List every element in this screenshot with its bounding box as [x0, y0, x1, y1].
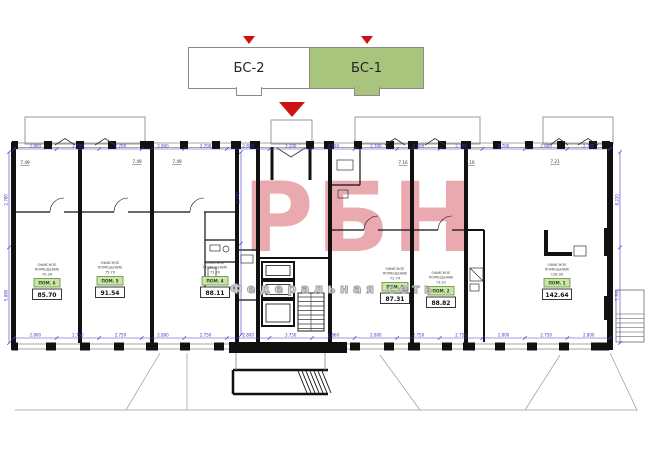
dim-label: 2.770	[236, 192, 241, 204]
balconies	[25, 117, 613, 144]
dim-label: 2.750	[115, 333, 127, 338]
room-type-label: ПОМЕЩЕНИЕ	[429, 276, 454, 280]
unit-badge-label: ПОМ. 5	[101, 279, 118, 284]
exterior-walls	[11, 142, 613, 353]
entrance-canopy	[271, 120, 312, 144]
room-label-group: ОФИСНОЕПОМЕЩЕНИЕ70.34ПОМ. 685.70	[33, 263, 62, 300]
total-area-value: 85.70	[38, 292, 57, 299]
room-type-label: ПОМЕЩЕНИЕ	[383, 272, 408, 276]
total-area-value: 91.54	[101, 290, 120, 297]
room-type-label: ОФИСНОЕ	[432, 271, 452, 275]
room-type-label: ПОМЕЩЕНИЕ	[545, 268, 570, 272]
balcony-outline	[355, 117, 480, 144]
balcony-area-label: 7.49	[132, 159, 142, 164]
dim-label: 8.220	[615, 194, 620, 206]
room-label-group: ОФИСНОЕПОМЕЩЕНИЕ75.70ПОМ. 591.54	[96, 261, 125, 298]
dim-label: 3.200	[285, 144, 297, 149]
dim-label: 2.750	[540, 333, 552, 338]
staircase	[298, 293, 324, 331]
dim-label: 2.860	[328, 333, 340, 338]
room-type-label: ПОМЕЩЕНИЕ	[203, 266, 228, 270]
room-area-label: 72.74	[390, 277, 401, 281]
dim-label: 2.800	[413, 144, 425, 149]
floorplan-viewer: БС-2 БС-1 РБН	[0, 0, 650, 465]
balcony-area-label: 7.16	[465, 160, 475, 165]
dim-label: 2.800	[157, 144, 169, 149]
dim-label: 2.800	[540, 144, 552, 149]
dim-label: 2.780	[4, 194, 9, 206]
room-type-label: ОФИСНОЕ	[38, 263, 58, 267]
room-area-label: 128.00	[551, 273, 564, 277]
dim-label: 2.750	[413, 333, 425, 338]
core-bottom-wall	[229, 342, 347, 353]
dim-label: 2.800	[583, 333, 595, 338]
dims-left: 2.7805.880	[4, 150, 11, 345]
dim-label: 2.800	[498, 333, 510, 338]
balcony-outline	[543, 117, 613, 144]
dim-label: 2.800	[370, 333, 382, 338]
watermark-tagline: Федеральная сеть	[230, 281, 436, 296]
room-type-label: ОФИСНОЕ	[548, 263, 568, 267]
floor-plan-drawing: 2.8002.7002.7002.8002.7002.8003.2002.800…	[0, 0, 650, 465]
unit-badge-label: ПОМ. 6	[38, 281, 55, 286]
entrance-ramp	[233, 353, 331, 394]
dim-label: 2.700	[583, 144, 595, 149]
room-label-group: ОФИСНОЕПОМЕЩЕНИЕ73.20ПОМ. 488.11	[201, 261, 230, 298]
room-area-label: 75.70	[105, 271, 116, 275]
balcony-area-labels: 7.497.497.497.167.167.21	[20, 159, 560, 165]
room-label-group: ОФИСНОЕПОМЕЩЕНИЕ128.00ПОМ. 1142.64	[543, 263, 572, 300]
dim-label: 2.700	[498, 144, 510, 149]
dim-label: 2.700	[72, 144, 84, 149]
balcony-area-label: 7.21	[550, 159, 560, 164]
room-area-label: 73.20	[210, 271, 221, 275]
dim-label: 2.800	[242, 144, 254, 149]
dim-label: 2.700	[455, 144, 467, 149]
dim-label: 5.880	[4, 289, 9, 301]
dim-label: 2.800	[328, 144, 340, 149]
entrance-vestibule	[272, 147, 310, 180]
dim-label: 2.750	[200, 333, 212, 338]
dim-label: 2.700	[200, 144, 212, 149]
room-area-label: 70.34	[42, 273, 53, 277]
dim-label: 2.800	[30, 333, 42, 338]
dims-bottom: 2.8002.7502.7502.8002.7502.8003.7502.860…	[12, 333, 612, 340]
total-area-value: 142.64	[545, 292, 568, 299]
balcony-outline	[25, 117, 145, 144]
balcony-area-label: 7.49	[172, 159, 182, 164]
unit-badge-label: ПОМ. 1	[548, 281, 565, 286]
room-type-label: ПОМЕЩЕНИЕ	[98, 266, 123, 270]
dim-label: 2.700	[370, 144, 382, 149]
room-type-label: ОФИСНОЕ	[206, 261, 226, 265]
dim-label: 3.750	[285, 333, 297, 338]
dim-label: 2.700	[115, 144, 127, 149]
balcony-area-label: 7.16	[398, 160, 408, 165]
dim-label: 2.800	[30, 144, 42, 149]
room-type-label: ОФИСНОЕ	[386, 267, 406, 271]
total-area-value: 88.82	[432, 300, 451, 307]
total-area-value: 87.31	[386, 296, 405, 303]
dim-label: 2.750	[72, 333, 84, 338]
balcony-area-label: 7.49	[20, 160, 30, 165]
dim-label: 7.705	[615, 289, 620, 301]
room-type-label: ОФИСНОЕ	[101, 261, 121, 265]
room-type-label: ПОМЕЩЕНИЕ	[35, 268, 60, 272]
dim-label: 2.800	[242, 333, 254, 338]
dim-label: 2.800	[157, 333, 169, 338]
unit-badge-label: ПОМ. 4	[206, 279, 223, 284]
total-area-value: 88.11	[206, 290, 225, 297]
room-area-label: 73.91	[436, 281, 446, 285]
dim-label: 2.750	[455, 333, 467, 338]
